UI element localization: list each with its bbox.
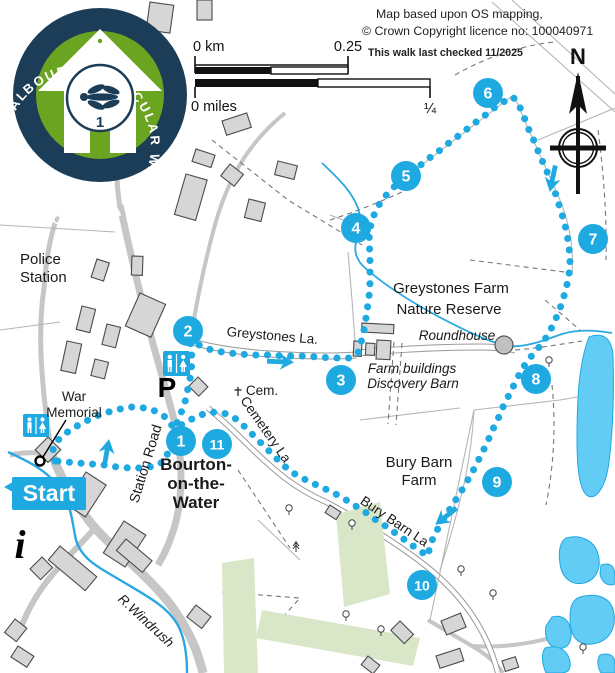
credit-line-2: © Crown Copyright licence no: 100040971	[362, 23, 612, 40]
waypoint-6: 6	[473, 78, 503, 108]
route-arrow-icon	[542, 164, 563, 194]
map-label: Station	[20, 269, 67, 286]
map-label: Roundhouse	[419, 328, 496, 343]
map-label: Bury Barn	[386, 454, 453, 471]
green-areas	[222, 502, 420, 673]
waypoint-7: 7	[578, 224, 608, 254]
waypoint-4: 4	[341, 213, 371, 243]
waypoint-8: 8	[521, 364, 551, 394]
map-label: Discovery Barn	[367, 376, 459, 391]
map-label: Police	[20, 251, 61, 268]
map-credit: Map based upon OS mapping, © Crown Copyr…	[362, 6, 612, 60]
waypoint-2: 2	[173, 316, 203, 346]
map-label: Nature Reserve	[396, 301, 501, 318]
conifer-icon	[293, 541, 299, 552]
walk-badge-logo: BOURTON CIRCULAR WALK • BOURTON CIRCULAR…	[0, 0, 187, 230]
scale-km-zero: 0 km	[193, 39, 224, 55]
waypoint-9: 9	[482, 467, 512, 497]
map-label: Greystones Farm	[393, 280, 509, 297]
waypoint-number: 7	[589, 231, 598, 248]
map-label: P	[158, 372, 177, 403]
map-label: i	[14, 522, 25, 567]
waypoint-number: 5	[402, 168, 411, 185]
waypoint-number: 1	[177, 433, 186, 450]
roundhouse-marker	[495, 336, 513, 354]
map-label: on-the-	[167, 474, 225, 493]
lakes	[542, 335, 615, 673]
start-marker: Start	[12, 477, 86, 510]
route-arrow-icon	[96, 438, 116, 467]
walk-checked-date: This walk last checked 11/2025	[362, 46, 612, 60]
toilets-icon	[23, 414, 49, 437]
badge-number: 1	[96, 114, 104, 131]
map-image: Start 1234567891011 PoliceStationWarMemo…	[0, 0, 615, 673]
waypoint-number: 9	[493, 474, 502, 491]
map-label: Water	[173, 493, 220, 512]
waypoint-number: 10	[414, 577, 430, 593]
map-label: Farm buildings	[368, 361, 457, 376]
war-memorial-marker	[36, 457, 45, 466]
map-label: Farm	[402, 472, 437, 489]
route-arrow-icon	[430, 502, 461, 531]
map-label: Bourton-	[160, 455, 232, 474]
scale-miles-zero: 0 miles	[191, 99, 237, 115]
waypoint-number: 8	[532, 371, 541, 388]
waypoint-number: 11	[210, 436, 225, 452]
waypoint-number: 6	[484, 85, 493, 102]
map-label: Greystones La.	[226, 324, 319, 347]
walk-map: Start 1234567891011 PoliceStationWarMemo…	[0, 0, 615, 673]
map-label: Cemetery La	[237, 393, 294, 465]
start-label: Start	[23, 480, 76, 506]
waypoint-number: 3	[337, 372, 346, 389]
waypoint-1: 1	[166, 426, 196, 456]
waypoint-number: 2	[184, 323, 193, 340]
north-compass: N	[550, 44, 606, 194]
scale-miles-max: ¼	[424, 101, 437, 117]
waypoint-3: 3	[326, 365, 356, 395]
map-label: Memorial	[46, 405, 102, 420]
map-label: War	[62, 389, 87, 404]
cemetery-cross-icon	[235, 387, 242, 396]
scale-km-max: 0.25	[334, 39, 362, 55]
waypoint-number: 4	[352, 220, 361, 237]
credit-line-1: Map based upon OS mapping,	[362, 6, 612, 23]
waypoint-10: 10	[407, 570, 437, 600]
waypoint-5: 5	[391, 161, 421, 191]
